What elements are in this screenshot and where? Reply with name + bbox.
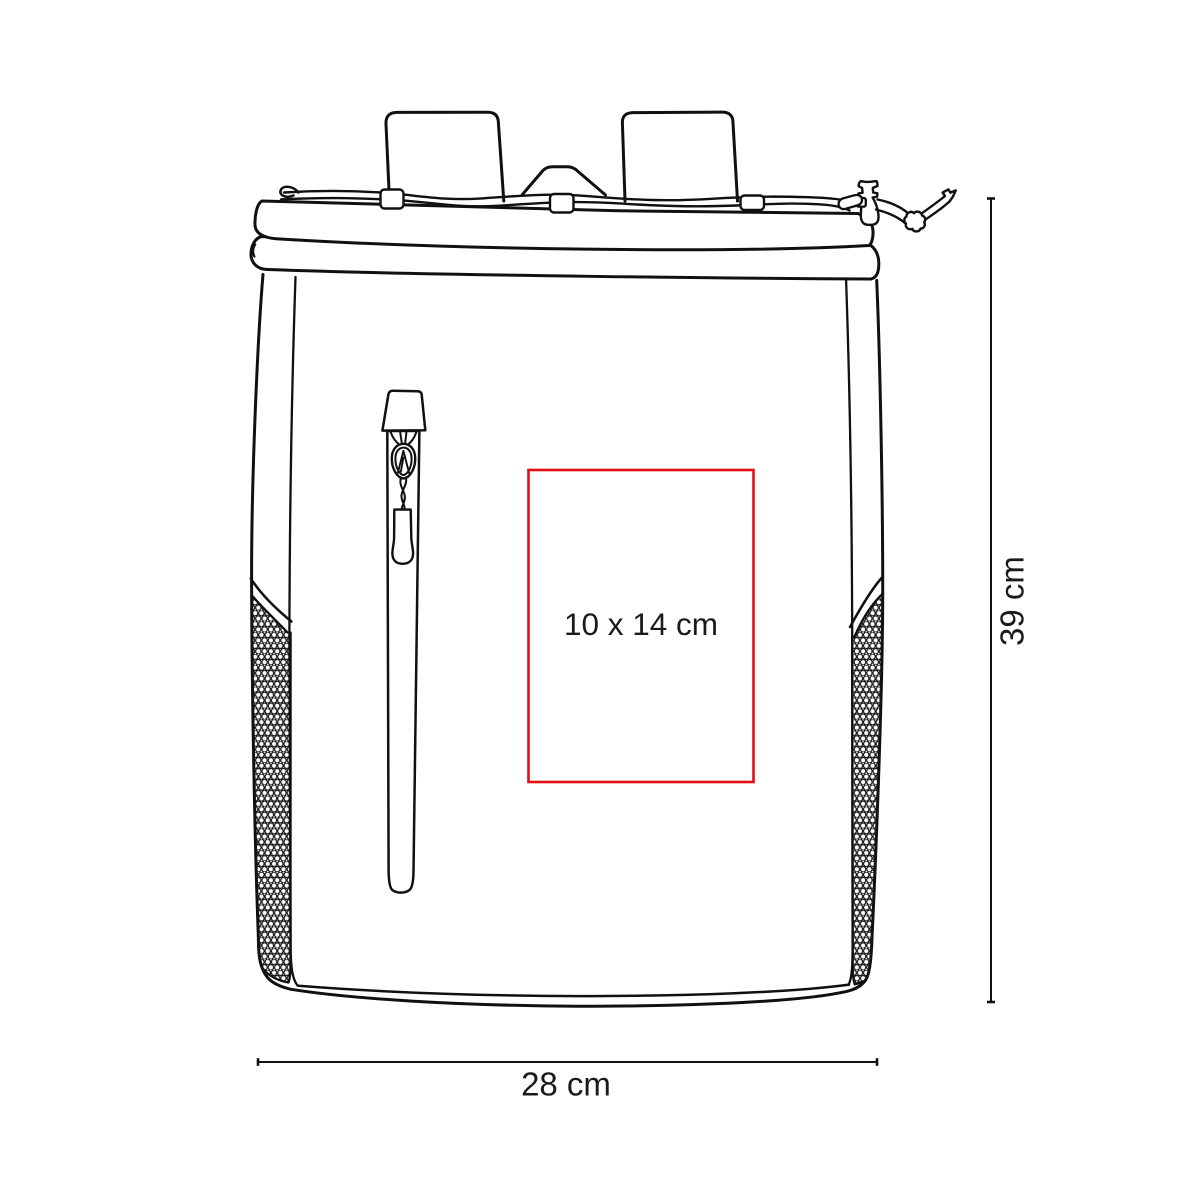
- svg-text:39 cm: 39 cm: [994, 556, 1031, 646]
- svg-text:10 x 14 cm: 10 x 14 cm: [564, 606, 718, 642]
- svg-text:28 cm: 28 cm: [521, 1066, 611, 1103]
